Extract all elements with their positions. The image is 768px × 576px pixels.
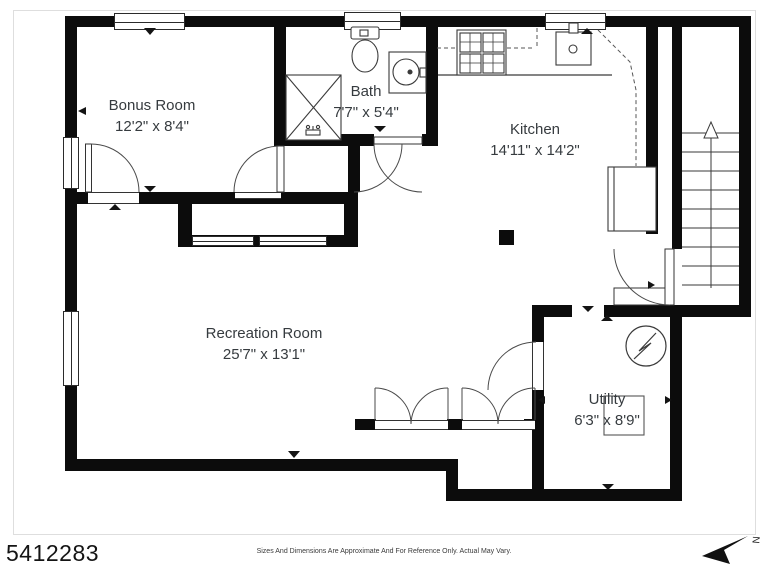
door-hall: [354, 144, 402, 192]
room-name: Recreation Room: [154, 323, 374, 344]
room-label-bonus: Bonus Room 12'2" x 8'4": [72, 95, 232, 137]
room-name: Bonus Room: [72, 95, 232, 116]
door-utility: [488, 342, 536, 390]
toilet-icon: [351, 27, 379, 72]
room-label-utility: Utility 6'3" x 8'9": [542, 389, 672, 431]
room-dims: 12'2" x 8'4": [72, 116, 232, 137]
room-name: Kitchen: [455, 119, 615, 140]
room-label-kitchen: Kitchen 14'11" x 14'2": [455, 119, 615, 161]
door-kitchen-landing: [614, 249, 674, 305]
room-dims: 14'11" x 14'2": [455, 140, 615, 161]
closet-double-doors-icon: [375, 388, 535, 424]
room-dims: 7'7" x 5'4": [302, 102, 430, 123]
door-bonus-east: [234, 146, 284, 192]
room-dims: 25'7" x 13'1": [154, 344, 374, 365]
room-label-bath: Bath 7'7" x 5'4": [302, 81, 430, 123]
floor-plan: N Bonus Room 12'2" x 8'4" Bath 7'7" x 5'…: [0, 0, 768, 576]
disclaimer-text: Sizes And Dimensions Are Approximate And…: [0, 548, 768, 555]
room-dims: 6'3" x 8'9": [542, 410, 672, 431]
room-label-recreation: Recreation Room 25'7" x 13'1": [154, 323, 374, 365]
water-heater-icon: [626, 326, 666, 366]
room-name: Utility: [542, 389, 672, 410]
column: [499, 230, 514, 245]
compass-north-label: N: [749, 536, 761, 544]
refrigerator-icon: [608, 167, 656, 231]
stove-icon: [457, 30, 506, 75]
door-bonus-west: [86, 144, 140, 192]
stairs-up-icon: [682, 122, 739, 288]
room-name: Bath: [302, 81, 430, 102]
